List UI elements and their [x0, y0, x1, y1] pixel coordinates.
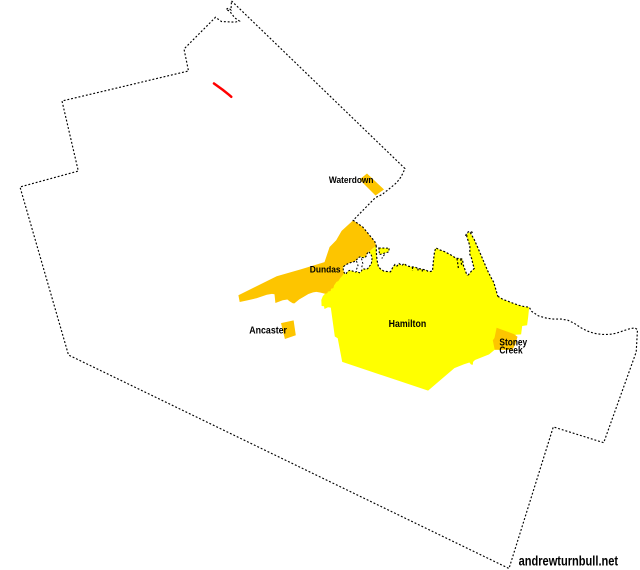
svg-text:andrewturnbull.net: andrewturnbull.net	[519, 553, 619, 569]
svg-text:Ancaster: Ancaster	[249, 325, 287, 337]
svg-text:Hamilton: Hamilton	[389, 318, 427, 330]
svg-text:Dundas: Dundas	[310, 264, 341, 275]
svg-text:Creek: Creek	[499, 346, 523, 357]
svg-text:Waterdown: Waterdown	[329, 175, 374, 186]
